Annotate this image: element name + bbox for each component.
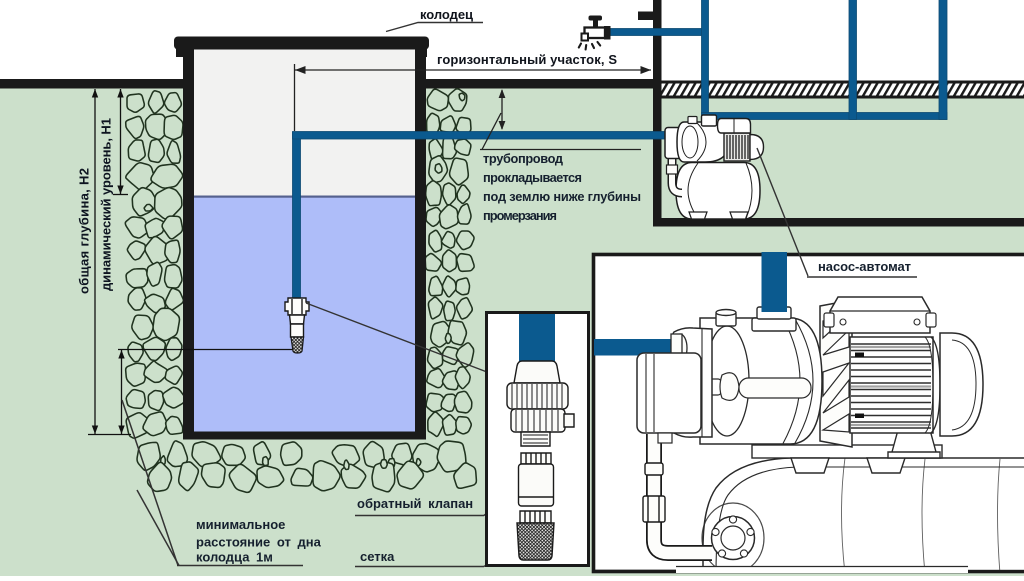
svg-text:динамический уровень, Н1: динамический уровень, Н1	[99, 118, 114, 291]
svg-text:горизонтальный участок, S: горизонтальный участок, S	[437, 52, 617, 67]
svg-text:обратный клапан: обратный клапан	[357, 496, 473, 511]
svg-text:общая глубина, Н2: общая глубина, Н2	[77, 168, 92, 294]
svg-text:минимальное: минимальное	[196, 517, 285, 532]
svg-text:колодец: колодец	[420, 7, 473, 22]
svg-text:под землю ниже глубины: под землю ниже глубины	[483, 189, 641, 204]
svg-text:прокладывается: прокладывается	[483, 170, 582, 185]
svg-text:трубопровод: трубопровод	[483, 151, 563, 166]
svg-text:расстояние от дна: расстояние от дна	[196, 535, 322, 550]
svg-text:насос-автомат: насос-автомат	[818, 259, 911, 274]
svg-text:сетка: сетка	[360, 549, 395, 564]
svg-text:колодца 1м: колодца 1м	[196, 550, 273, 565]
svg-text:промерзания: промерзания	[483, 208, 557, 223]
